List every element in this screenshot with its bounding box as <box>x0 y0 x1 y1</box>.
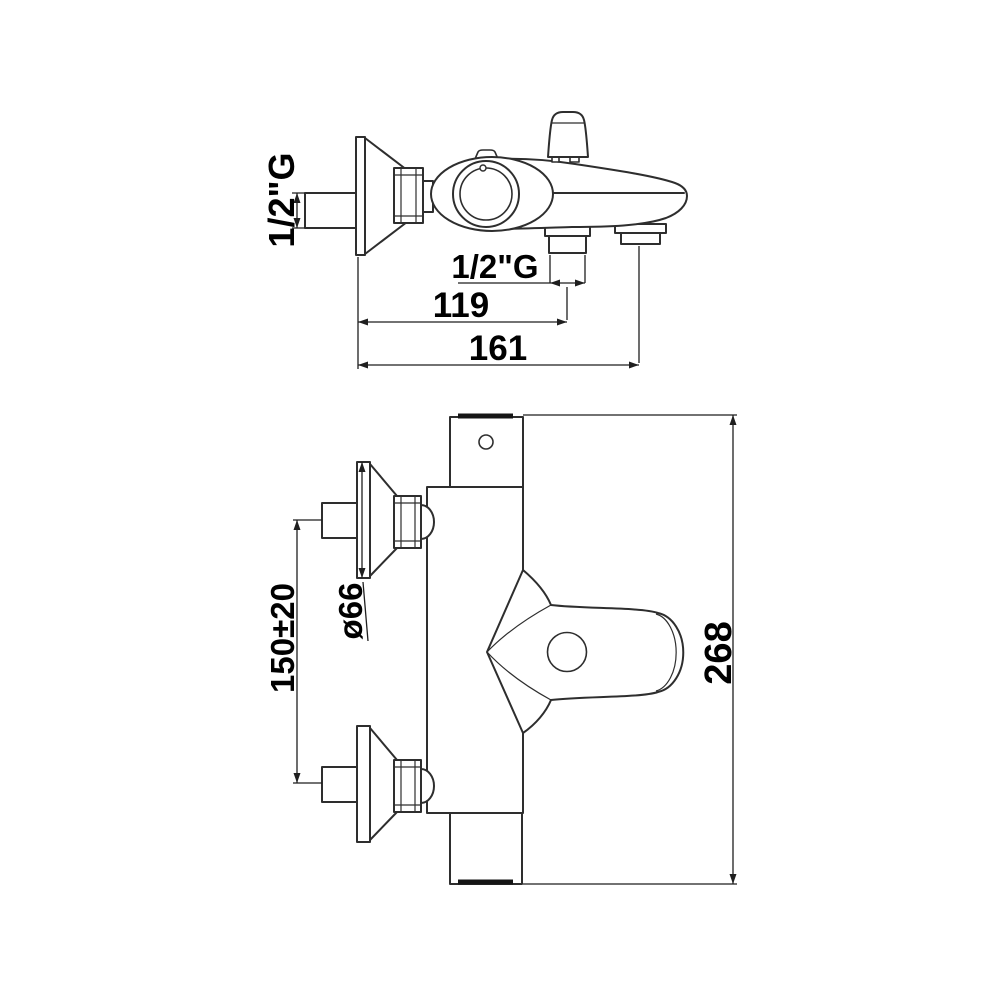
dim-119-label: 119 <box>433 286 489 325</box>
knob-inner-ring <box>460 168 512 220</box>
dim-161-label: 161 <box>469 329 527 368</box>
inlet-nipple <box>305 193 357 228</box>
lower-inlet-nipple <box>322 767 357 802</box>
upper-hex-nut <box>394 496 421 548</box>
bottom-knob-square <box>450 813 522 884</box>
front-view: ø66 150±20 268 <box>264 415 740 884</box>
technical-drawing-page: 1/2"G 1/2"G 119 161 <box>0 0 1000 1000</box>
upper-escutcheon-cone <box>370 464 397 576</box>
diverter-screw-hole <box>479 435 493 449</box>
dim-diameter-label: ø66 <box>332 583 369 640</box>
lower-connection <box>322 726 434 842</box>
diverter-dome <box>548 112 588 157</box>
outlets <box>545 224 666 253</box>
bottom-knob-front <box>450 813 522 884</box>
shower-outlet-thread <box>549 236 586 253</box>
mixer-technical-drawing: 1/2"G 1/2"G 119 161 <box>0 0 1000 1000</box>
side-view: 1/2"G 1/2"G 119 161 <box>261 112 687 369</box>
dim-268-label: 268 <box>698 621 740 684</box>
lower-wall-plate <box>357 726 370 842</box>
wall-plate <box>356 137 365 255</box>
wall-connection <box>305 137 433 255</box>
handle-front <box>487 570 683 733</box>
dim-inlet-spacing: 150±20 <box>264 520 322 783</box>
lower-escutcheon-cone <box>370 728 397 840</box>
handle-hole <box>548 633 587 672</box>
inlet-thread-label: 1/2"G <box>261 152 302 247</box>
hex-nut <box>394 168 423 223</box>
upper-wall-plate <box>357 462 370 578</box>
knob-index-notch <box>480 165 486 171</box>
diverter-front <box>450 416 523 487</box>
dim-inlet-thread: 1/2"G <box>261 152 305 247</box>
upper-connection <box>322 462 434 578</box>
spout-outlet-ring <box>621 233 660 244</box>
dim-spacing-label: 150±20 <box>264 583 301 693</box>
outlet-thread-label: 1/2"G <box>451 248 538 285</box>
lower-hex-nut <box>394 760 421 812</box>
upper-inlet-nipple <box>322 503 357 538</box>
diverter-square <box>450 417 523 487</box>
diverter-knob <box>548 112 588 162</box>
